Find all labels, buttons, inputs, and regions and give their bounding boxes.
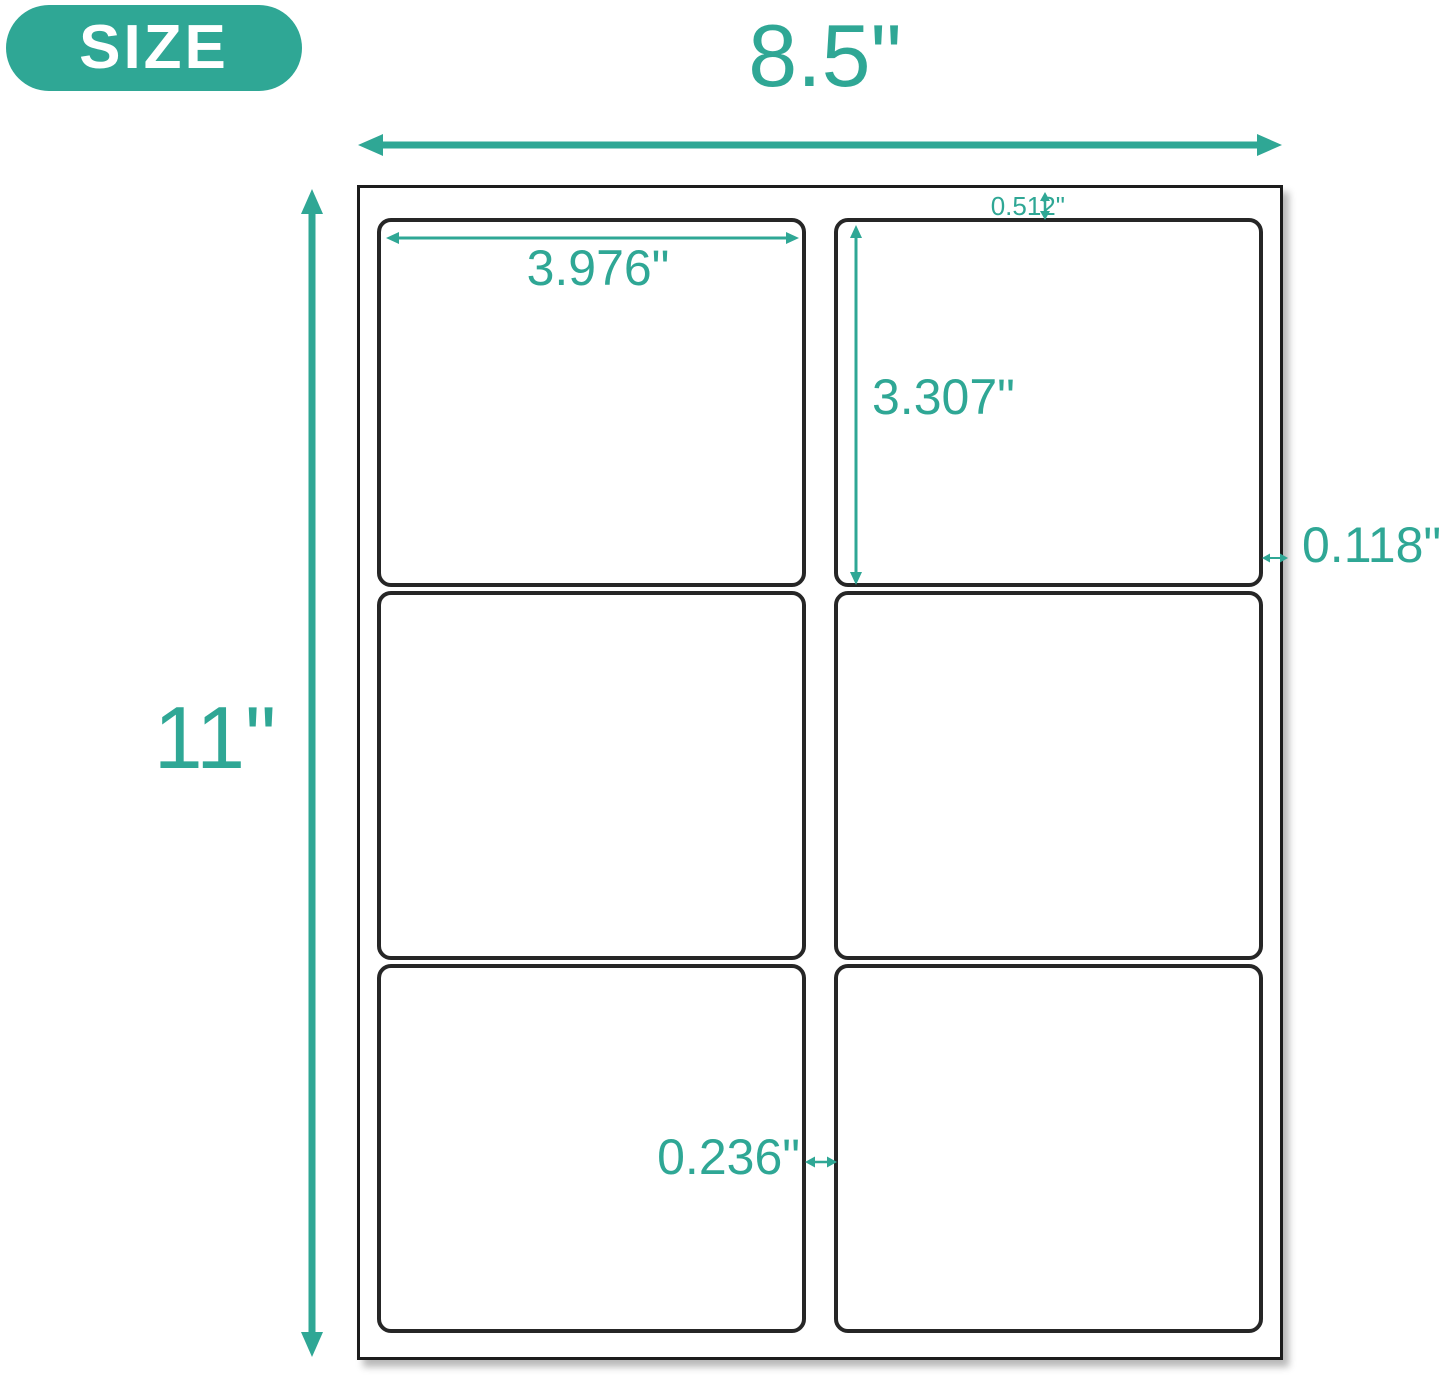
sheet-width-arrow xyxy=(357,132,1283,158)
sheet-height-label: 11" xyxy=(145,694,285,782)
size-badge-label: SIZE xyxy=(79,17,229,79)
label-height-value: 3.307" xyxy=(872,372,1015,422)
label-cell xyxy=(377,591,806,960)
top-margin-arrow xyxy=(1039,192,1051,220)
label-height-arrow xyxy=(848,224,864,586)
sheet-width-label: 8.5" xyxy=(700,12,950,100)
side-margin-arrow xyxy=(1262,552,1288,564)
label-cell xyxy=(834,591,1263,960)
label-sheet xyxy=(357,185,1283,1360)
label-width-value: 3.976" xyxy=(448,243,748,293)
size-badge: SIZE xyxy=(6,5,302,91)
label-cell xyxy=(834,964,1263,1333)
column-gap-value: 0.236" xyxy=(600,1132,800,1182)
sheet-height-arrow xyxy=(299,188,325,1358)
column-gap-arrow xyxy=(805,1155,837,1169)
label-sheet-size-diagram: SIZE 8.5" 11" 3.976" 3.307" 0.512" xyxy=(0,0,1445,1377)
side-margin-value: 0.118" xyxy=(1302,520,1441,570)
top-margin-value: 0.512" xyxy=(865,193,1065,219)
